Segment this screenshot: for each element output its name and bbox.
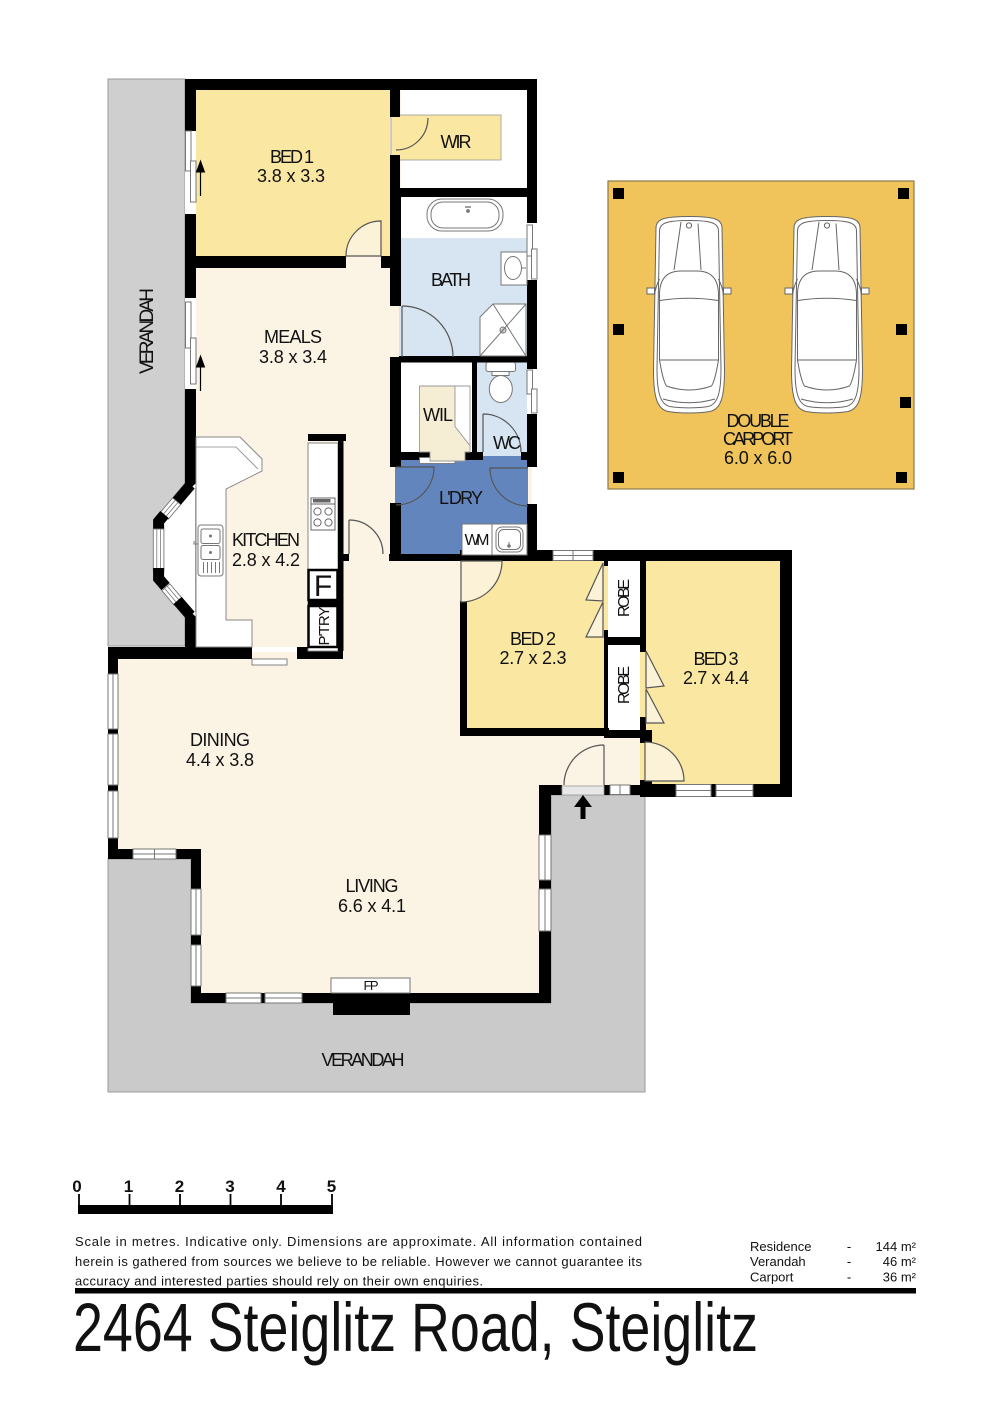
svg-text:6.0 x 6.0: 6.0 x 6.0 [724, 448, 792, 468]
svg-text:2.7 x 4.4: 2.7 x 4.4 [683, 668, 749, 688]
svg-text:P'TRY: P'TRY [316, 607, 333, 646]
svg-text:DOUBLE: DOUBLE [727, 411, 790, 431]
svg-text:DINING: DINING [190, 730, 250, 750]
svg-text:CARPORT: CARPORT [723, 429, 793, 449]
svg-text:6.6 x 4.1: 6.6 x 4.1 [338, 896, 406, 916]
svg-text:-: - [847, 1239, 851, 1254]
svg-text:WIR: WIR [441, 132, 472, 152]
svg-text:2: 2 [175, 1177, 184, 1196]
svg-text:5: 5 [327, 1177, 336, 1196]
svg-text:-: - [847, 1270, 851, 1285]
svg-text:2464 Steiglitz Road, Steiglitz: 2464 Steiglitz Road, Steiglitz [73, 1289, 758, 1366]
svg-text:BATH: BATH [431, 270, 471, 290]
svg-text:BED 1: BED 1 [270, 147, 314, 167]
svg-text:ROBE: ROBE [616, 579, 633, 617]
svg-text:BED 3: BED 3 [694, 649, 739, 669]
svg-text:F: F [314, 570, 332, 603]
svg-text:VERANDAH: VERANDAH [322, 1050, 405, 1070]
svg-text:3.8 x 3.3: 3.8 x 3.3 [257, 166, 325, 186]
svg-text:BED 2: BED 2 [510, 629, 556, 649]
svg-text:WM: WM [465, 532, 490, 549]
svg-text:2.7 x 2.3: 2.7 x 2.3 [500, 648, 567, 668]
svg-text:L'DRY: L'DRY [439, 488, 483, 508]
svg-text:Verandah: Verandah [750, 1254, 806, 1269]
svg-text:FP: FP [364, 978, 379, 993]
svg-text:46 m²: 46 m² [883, 1254, 917, 1269]
svg-text:KITCHEN: KITCHEN [232, 530, 300, 550]
svg-text:ROBE: ROBE [616, 666, 633, 704]
svg-text:-: - [847, 1254, 851, 1269]
svg-text:Scale in metres. Indicative on: Scale in metres. Indicative only. Dimens… [75, 1234, 642, 1249]
svg-text:4: 4 [276, 1177, 286, 1196]
svg-text:2.8 x 4.2: 2.8 x 4.2 [232, 550, 300, 570]
svg-text:WC: WC [493, 433, 521, 453]
svg-text:LIVING: LIVING [346, 876, 399, 896]
svg-text:VERANDAH: VERANDAH [137, 288, 158, 374]
svg-text:36 m²: 36 m² [883, 1270, 917, 1285]
svg-text:MEALS: MEALS [264, 327, 322, 347]
svg-text:Carport: Carport [750, 1270, 794, 1285]
svg-text:accuracy and interested partie: accuracy and interested parties should r… [75, 1274, 483, 1289]
svg-text:WIL: WIL [423, 405, 453, 425]
svg-text:1: 1 [124, 1177, 133, 1196]
svg-text:Residence: Residence [750, 1239, 811, 1254]
svg-text:144 m²: 144 m² [876, 1239, 917, 1254]
svg-text:herein is gathered from source: herein is gathered from sources we belie… [75, 1254, 643, 1269]
svg-text:4.4 x 3.8: 4.4 x 3.8 [186, 750, 254, 770]
svg-text:3: 3 [225, 1177, 234, 1196]
svg-text:3.8 x 3.4: 3.8 x 3.4 [259, 347, 327, 367]
svg-text:0: 0 [72, 1177, 81, 1196]
